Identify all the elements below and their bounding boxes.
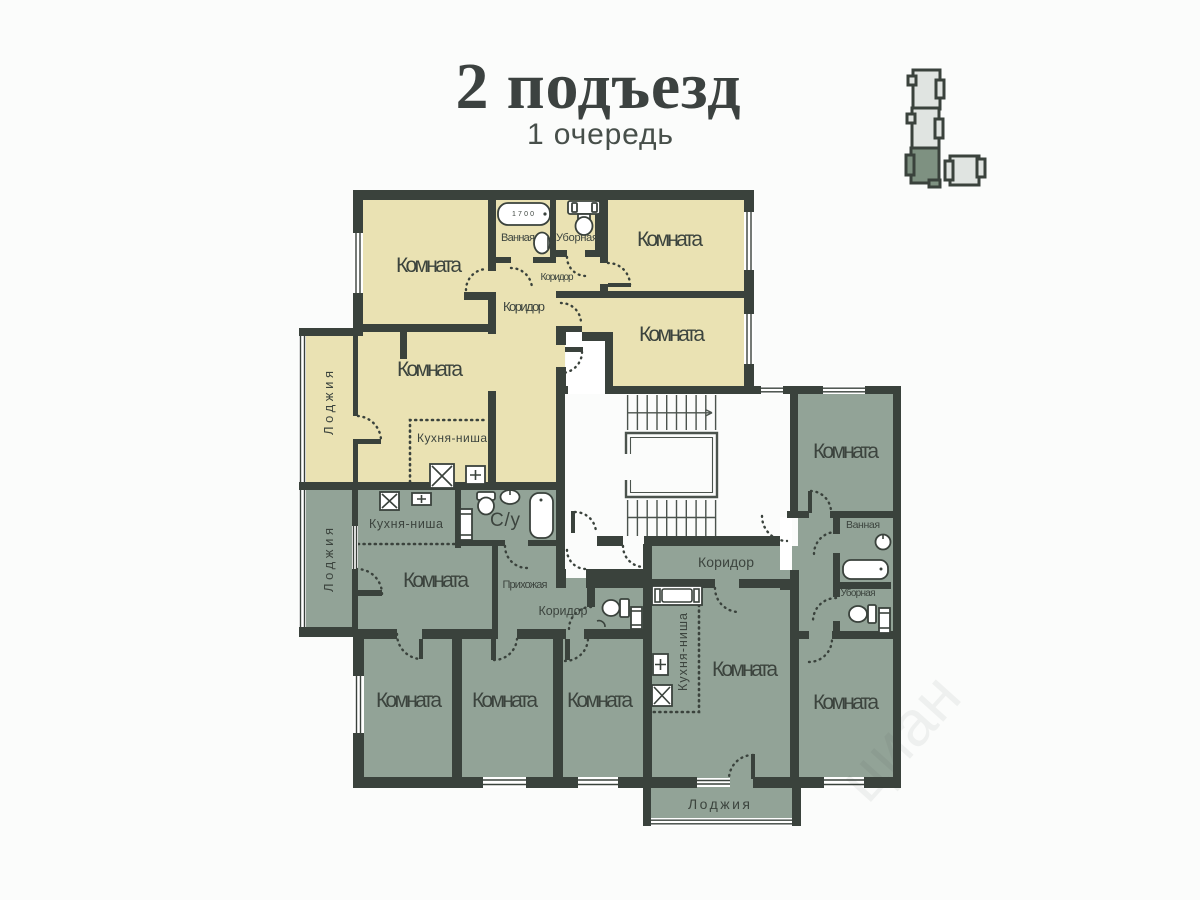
svg-text:Комната: Комната	[376, 689, 442, 712]
svg-text:Кухня-ниша: Кухня-ниша	[369, 517, 443, 531]
svg-text:Уборная: Уборная	[556, 232, 598, 244]
svg-text:Коридор: Коридор	[539, 604, 588, 618]
svg-text:Комната: Комната	[403, 569, 469, 592]
svg-text:Комната: Комната	[813, 440, 879, 463]
svg-text:Коридор: Коридор	[503, 299, 545, 314]
svg-text:Коридор: Коридор	[698, 554, 754, 570]
svg-text:Комната: Комната	[712, 658, 778, 681]
svg-text:Уборная: Уборная	[841, 587, 876, 599]
svg-text:Ванная: Ванная	[501, 232, 535, 244]
svg-text:Прихожая: Прихожая	[503, 579, 548, 591]
svg-text:Кухня-ниша: Кухня-ниша	[417, 431, 487, 445]
svg-text:Комната: Комната	[639, 323, 705, 346]
svg-text:Комната: Комната	[397, 358, 463, 381]
svg-text:Комната: Комната	[472, 689, 538, 712]
svg-text:Комната: Комната	[637, 228, 703, 251]
svg-text:Комната: Комната	[567, 689, 633, 712]
svg-text:Кухня-ниша: Кухня-ниша	[676, 613, 690, 691]
svg-text:Ванная: Ванная	[846, 519, 880, 531]
svg-text:С/у: С/у	[490, 510, 521, 531]
svg-text:Комната: Комната	[396, 254, 462, 277]
svg-text:1 очередь: 1 очередь	[527, 118, 673, 151]
svg-text:Коридор: Коридор	[541, 272, 574, 283]
svg-text:Комната: Комната	[813, 691, 879, 714]
svg-text:2 подъезд: 2 подъезд	[456, 50, 741, 123]
